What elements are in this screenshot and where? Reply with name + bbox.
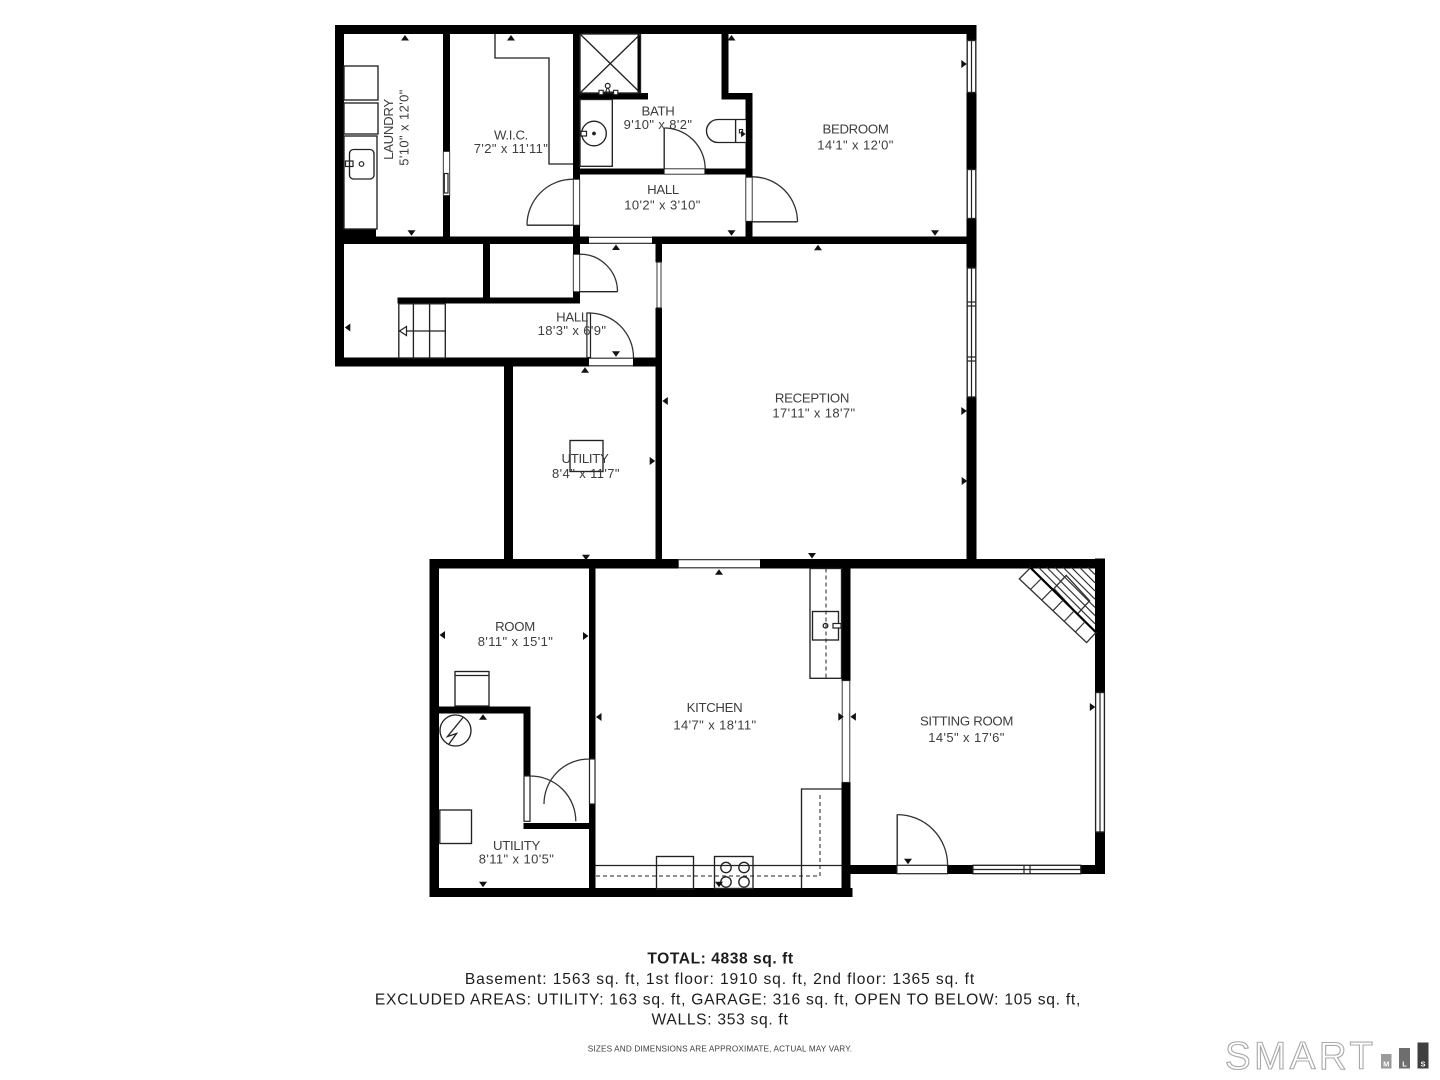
svg-text:UTILITY: UTILITY [562, 451, 609, 466]
svg-text:KITCHEN: KITCHEN [687, 700, 743, 715]
svg-text:EXCLUDED AREAS: UTILITY: 163 s: EXCLUDED AREAS: UTILITY: 163 sq. ft, GAR… [375, 991, 1081, 1008]
svg-text:9'10" x 8'2": 9'10" x 8'2" [624, 117, 693, 132]
svg-text:SIZES AND DIMENSIONS ARE APPRO: SIZES AND DIMENSIONS ARE APPROXIMATE, AC… [588, 1044, 852, 1053]
svg-text:14'5" x 17'6": 14'5" x 17'6" [928, 730, 1005, 745]
svg-text:LAUNDRY: LAUNDRY [381, 99, 396, 160]
svg-text:WALLS: 353 sq. ft: WALLS: 353 sq. ft [652, 1011, 789, 1028]
svg-text:18'3" x 6'9": 18'3" x 6'9" [538, 323, 607, 338]
svg-text:10'2" x 3'10": 10'2" x 3'10" [624, 198, 701, 213]
svg-text:Basement: 1563 sq. ft, 1st flo: Basement: 1563 sq. ft, 1st floor: 1910 s… [465, 971, 975, 988]
svg-text:BEDROOM: BEDROOM [822, 122, 888, 137]
svg-text:5'10" x 12'0": 5'10" x 12'0" [397, 89, 412, 166]
svg-text:S: S [1420, 1060, 1425, 1069]
svg-text:HALL: HALL [647, 182, 679, 197]
svg-text:17'11" x 18'7": 17'11" x 18'7" [772, 405, 855, 420]
svg-text:L: L [1402, 1060, 1407, 1069]
svg-text:SMART: SMART [1225, 1035, 1377, 1078]
svg-text:14'1" x 12'0": 14'1" x 12'0" [817, 138, 894, 153]
svg-text:M: M [1383, 1060, 1389, 1069]
svg-text:8'4" x 11'7": 8'4" x 11'7" [552, 466, 620, 481]
svg-text:RECEPTION: RECEPTION [775, 390, 849, 405]
svg-text:7'2" x 11'11": 7'2" x 11'11" [474, 141, 549, 156]
svg-text:8'11" x 10'5": 8'11" x 10'5" [479, 852, 555, 867]
svg-text:TOTAL: 4838 sq. ft: TOTAL: 4838 sq. ft [647, 950, 793, 967]
svg-text:ROOM: ROOM [495, 619, 535, 634]
svg-text:SITTING ROOM: SITTING ROOM [920, 714, 1013, 729]
svg-text:14'7" x 18'11": 14'7" x 18'11" [673, 718, 756, 733]
svg-text:8'11" x 15'1": 8'11" x 15'1" [478, 634, 554, 649]
